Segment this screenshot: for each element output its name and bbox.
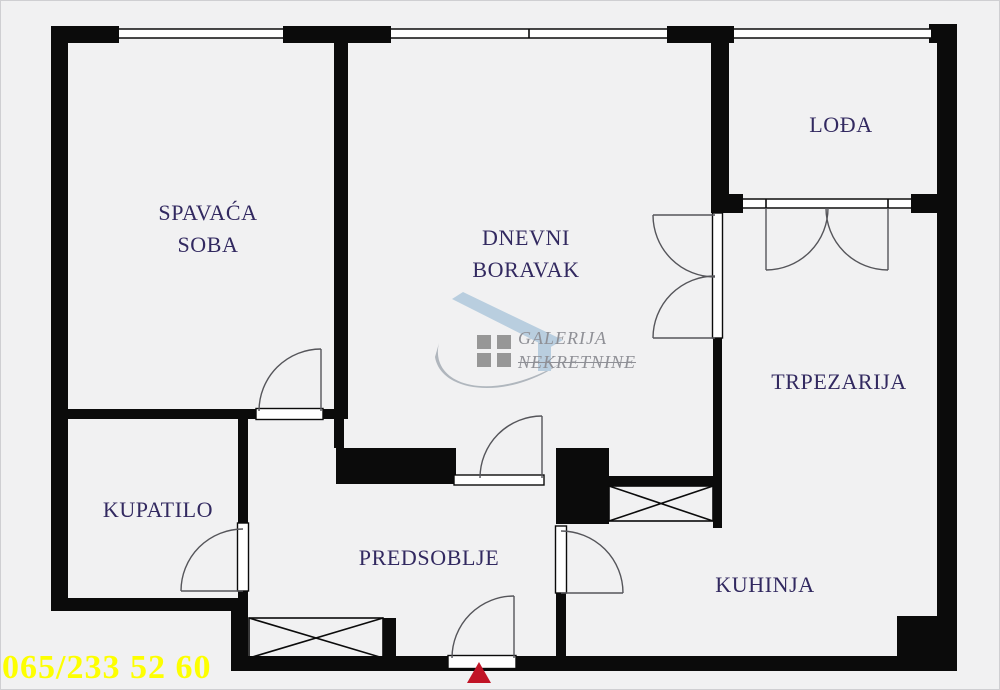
sill-entrance-door <box>448 656 516 669</box>
wall-right-outer <box>937 24 957 671</box>
door-bedroom-arc <box>259 349 321 411</box>
watermark-text-line1: GALERIJA <box>518 328 607 349</box>
wall-kupatilo-right-upper <box>238 417 248 523</box>
wall-kitchen-left-lower <box>556 593 566 656</box>
watermark-window-pane-icon <box>477 353 491 367</box>
wall-trpezarija-living <box>713 336 722 528</box>
wall-living-bottom-band <box>336 448 456 484</box>
door-entrance-arc <box>452 596 514 658</box>
wall-top-block-a <box>283 26 391 43</box>
wall-kitchen-corner-block <box>897 616 957 658</box>
room-label-kupatilo: KUPATILO <box>103 494 213 526</box>
wall-loggia-left <box>711 41 729 196</box>
room-label-line: SOBA <box>158 229 257 261</box>
room-label-spavaca-soba: SPAVAĆA SOBA <box>158 197 257 261</box>
watermark-text-line2: NEKRETNINE <box>518 352 636 373</box>
room-label-line: SPAVAĆA <box>158 197 257 229</box>
room-label-dnevni-boravak: DNEVNI BORAVAK <box>472 222 579 286</box>
door-living-arc <box>480 416 542 478</box>
wall-loggia-bottom-left-block <box>711 194 743 213</box>
room-label-predsoblje: PREDSOBLJE <box>359 542 499 574</box>
watermark-window-pane-icon <box>477 335 491 349</box>
wall-corner-block <box>556 448 609 524</box>
wall-top-left-block <box>51 26 119 43</box>
sill-living-door <box>454 475 544 485</box>
wall-kupatilo-bottom <box>51 598 248 611</box>
door-loggia-right-arc <box>826 208 888 270</box>
sill-bathroom-door <box>238 523 249 591</box>
window-bedroom <box>119 29 283 39</box>
room-label-line: DNEVNI <box>472 222 579 254</box>
sill-bedroom-door <box>256 409 323 420</box>
room-label-trpezarija: TRPEZARIJA <box>771 366 907 398</box>
room-label-lodja: LOĐA <box>809 109 873 141</box>
wall-bedroom-divider <box>334 43 348 419</box>
wall-top-block-b <box>667 26 734 43</box>
phone-number: 065/233 52 60 <box>2 649 211 687</box>
wall-bedroom-bottom <box>51 409 256 419</box>
watermark-window-pane-icon <box>497 335 511 349</box>
window-loggia-top <box>734 29 931 39</box>
wall-closet-end-block <box>383 618 396 658</box>
wall-top-right-block <box>929 24 957 43</box>
floor-plan-canvas: SPAVAĆA SOBA DNEVNI BORAVAK LOĐA TRPEZAR… <box>0 0 1000 690</box>
sill-kitchen-door <box>556 526 567 593</box>
wall-above-kitchen-closet <box>609 476 713 486</box>
floor-plan-drawing <box>1 1 1000 690</box>
wall-predsoblje-left-lower <box>231 611 248 658</box>
door-bathroom-arc <box>181 529 243 591</box>
wall-connector <box>334 417 344 448</box>
wall-left-outer <box>51 26 68 611</box>
wall-loggia-bottom-right-block <box>911 194 941 213</box>
room-label-line: BORAVAK <box>472 254 579 286</box>
door-double-top-arc <box>653 215 715 277</box>
door-double-bottom-arc <box>653 276 715 338</box>
door-kitchen-arc <box>561 531 623 593</box>
watermark-window-pane-icon <box>497 353 511 367</box>
room-label-kuhinja: KUHINJA <box>715 569 815 601</box>
door-loggia-left-arc <box>766 208 828 270</box>
